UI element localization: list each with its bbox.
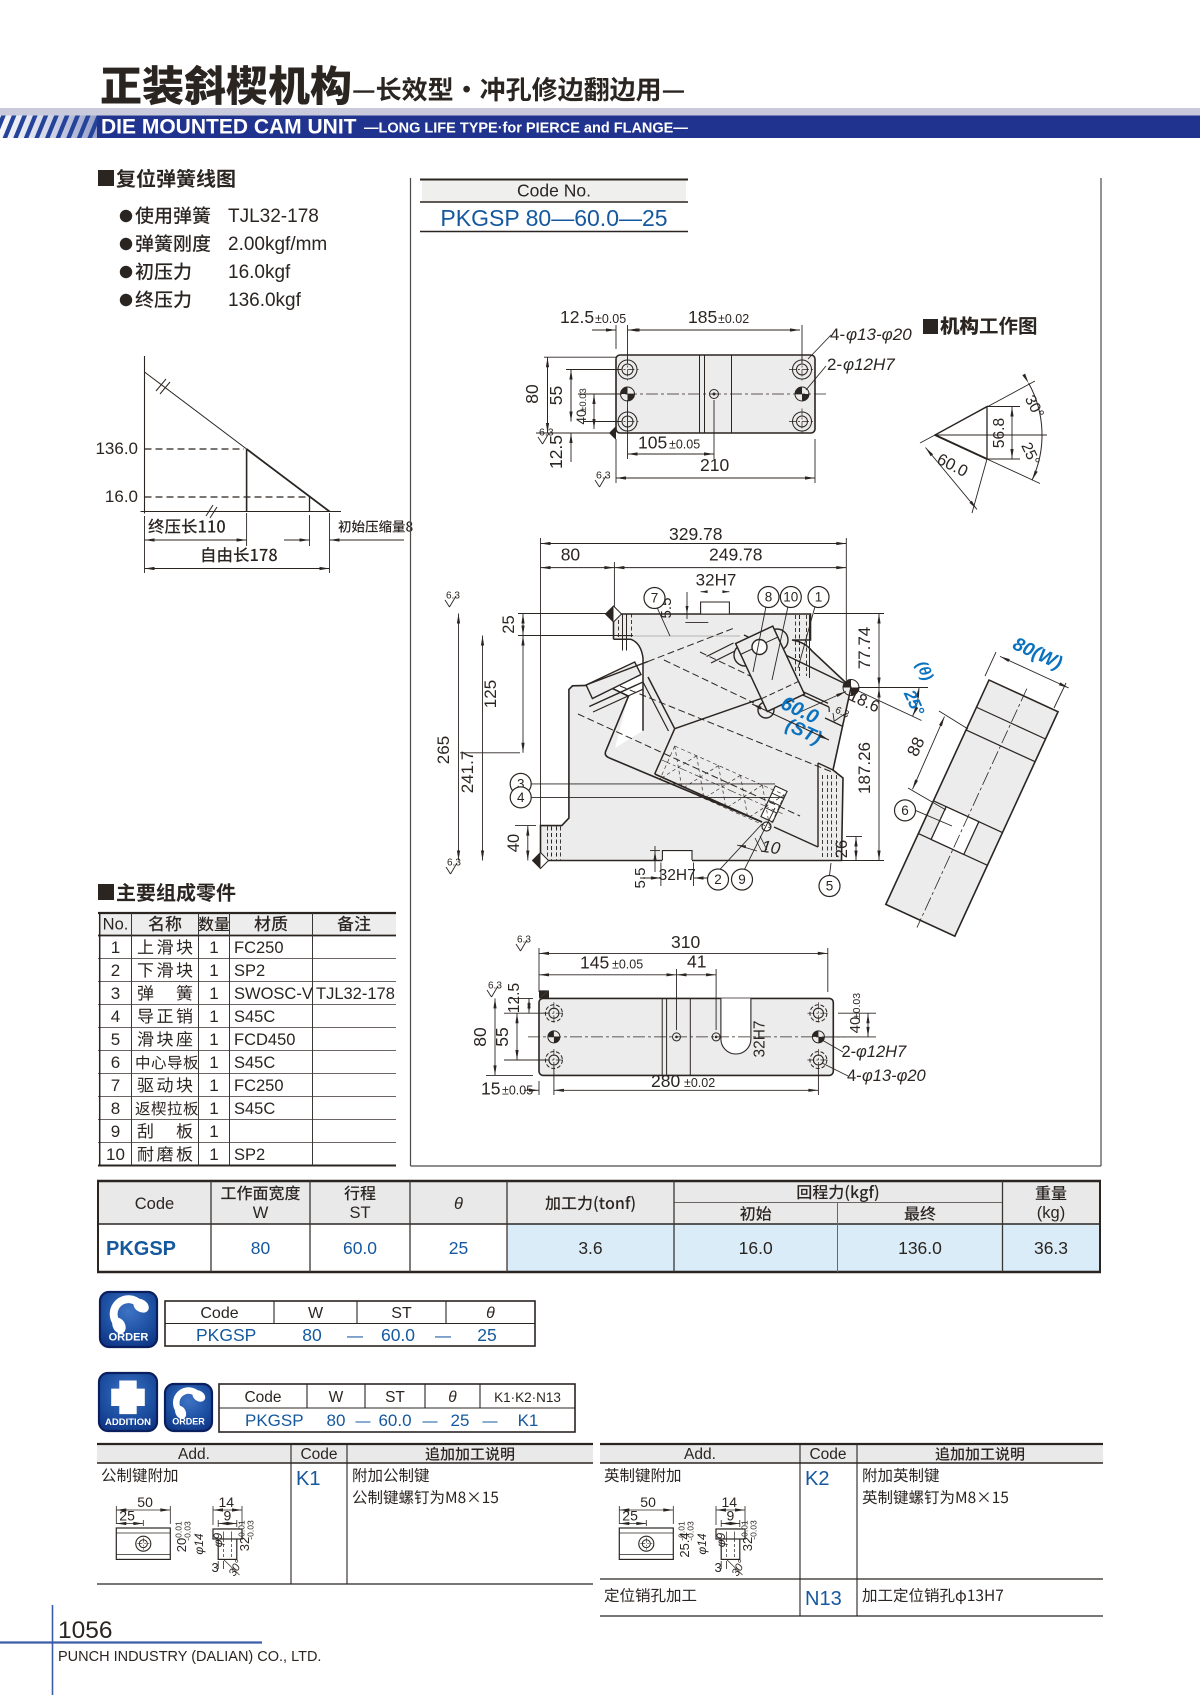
svg-text:80: 80 — [327, 1411, 346, 1430]
svg-text:PKGSP: PKGSP — [245, 1411, 304, 1430]
svg-text:±0.05: ±0.05 — [669, 438, 700, 452]
svg-text:80: 80 — [470, 1027, 490, 1047]
svg-text:6.3: 6.3 — [447, 858, 461, 869]
svg-text:2: 2 — [714, 872, 722, 887]
svg-text:16.0kgf: 16.0kgf — [228, 262, 291, 283]
svg-text:30°: 30° — [227, 1558, 246, 1579]
svg-text:280: 280 — [651, 1071, 680, 1091]
svg-text:3: 3 — [111, 984, 120, 1003]
svg-text:K1: K1 — [518, 1411, 539, 1430]
svg-text:1: 1 — [209, 938, 218, 957]
svg-text:2-: 2- — [842, 1043, 857, 1061]
svg-text:S45C: S45C — [234, 1008, 275, 1026]
svg-text:5: 5 — [111, 1030, 120, 1049]
svg-text:88: 88 — [903, 734, 928, 759]
svg-text:2: 2 — [111, 961, 120, 980]
svg-text:3: 3 — [715, 1560, 722, 1575]
svg-text:SP2: SP2 — [234, 962, 265, 980]
svg-text:6.3: 6.3 — [446, 591, 460, 602]
svg-text:-0.03: -0.03 — [749, 1520, 759, 1540]
svg-text:12.5: 12.5 — [506, 983, 523, 1013]
svg-text:9: 9 — [224, 1508, 232, 1524]
svg-text:1: 1 — [209, 1076, 218, 1095]
svg-text:±0.02: ±0.02 — [684, 1076, 715, 1090]
svg-text:Code: Code — [809, 1446, 846, 1463]
svg-text:φ13-φ20: φ13-φ20 — [862, 1067, 927, 1085]
svg-text:φ9: φ9 — [211, 1532, 225, 1547]
svg-text:S45C: S45C — [234, 1100, 275, 1118]
svg-text:±0.03: ±0.03 — [851, 993, 863, 1019]
svg-text:θ: θ — [486, 1305, 495, 1322]
svg-text:80: 80 — [302, 1325, 322, 1345]
svg-text:K1·K2·N13: K1·K2·N13 — [494, 1390, 561, 1405]
svg-text:1: 1 — [111, 938, 120, 957]
svg-text:25°: 25° — [1017, 440, 1042, 468]
svg-text:60.0: 60.0 — [343, 1238, 377, 1258]
svg-text:Add.: Add. — [684, 1446, 716, 1463]
svg-text:12.5: 12.5 — [546, 435, 566, 469]
svg-text:25: 25 — [449, 1238, 468, 1258]
svg-text:12.5: 12.5 — [560, 307, 594, 327]
svg-text:32H7: 32H7 — [659, 867, 696, 884]
svg-text:6.3: 6.3 — [517, 935, 531, 946]
svg-text:No.: No. — [103, 916, 129, 934]
svg-text:1: 1 — [815, 590, 823, 605]
svg-text:—LONG LIFE TYPE·for PIERCE and: —LONG LIFE TYPE·for PIERCE and FLANGE— — [364, 121, 688, 137]
svg-text:32H7: 32H7 — [696, 571, 737, 590]
svg-text:SP2: SP2 — [234, 1146, 265, 1164]
svg-text:1: 1 — [209, 984, 218, 1003]
svg-text:S45C: S45C — [234, 1054, 275, 1072]
svg-text:8: 8 — [111, 1099, 120, 1118]
svg-text:8: 8 — [765, 590, 773, 605]
svg-text:9: 9 — [738, 872, 746, 887]
svg-text:±0.03: ±0.03 — [578, 388, 589, 412]
svg-text:Code No.: Code No. — [517, 181, 591, 201]
svg-text:25: 25 — [119, 1508, 135, 1524]
svg-text:310: 310 — [671, 932, 700, 952]
svg-text:ST: ST — [385, 1389, 405, 1406]
svg-text:50: 50 — [640, 1494, 656, 1510]
svg-text:26: 26 — [833, 840, 851, 858]
svg-text:±0.05: ±0.05 — [612, 958, 643, 972]
svg-text:FC250: FC250 — [234, 1077, 284, 1095]
svg-text:—: — — [347, 1328, 363, 1345]
svg-text:Add.: Add. — [178, 1446, 210, 1463]
svg-text:60.0: 60.0 — [934, 450, 971, 481]
svg-text:210: 210 — [700, 455, 729, 475]
svg-text:K2: K2 — [805, 1468, 829, 1490]
svg-text:10: 10 — [106, 1145, 125, 1164]
svg-text:36.3: 36.3 — [1034, 1238, 1068, 1258]
svg-text:N13: N13 — [805, 1588, 842, 1610]
svg-text:±0.02: ±0.02 — [718, 312, 749, 326]
svg-text:—: — — [356, 1413, 371, 1430]
svg-text:ADDITION: ADDITION — [105, 1417, 151, 1428]
svg-text:1: 1 — [209, 961, 218, 980]
svg-text:1: 1 — [209, 1145, 218, 1164]
svg-text:10: 10 — [783, 590, 798, 605]
svg-text:φ12H7: φ12H7 — [856, 1043, 907, 1061]
svg-text:187.26: 187.26 — [855, 742, 874, 794]
svg-text:125: 125 — [481, 680, 500, 708]
svg-text:40: 40 — [505, 834, 523, 852]
svg-text:FC250: FC250 — [234, 939, 284, 957]
svg-text:1: 1 — [209, 1030, 218, 1049]
svg-text:6: 6 — [901, 803, 909, 818]
svg-text:4: 4 — [517, 790, 525, 805]
svg-text:3.6: 3.6 — [578, 1238, 602, 1258]
svg-text:41: 41 — [687, 952, 706, 972]
svg-text:6: 6 — [111, 1053, 120, 1072]
svg-text:6.3: 6.3 — [488, 981, 502, 992]
svg-text:60.0: 60.0 — [381, 1325, 415, 1345]
svg-text:9: 9 — [727, 1508, 735, 1524]
svg-text:-0.03: -0.03 — [183, 1521, 193, 1541]
svg-text:—: — — [483, 1413, 498, 1430]
svg-text:—: — — [435, 1328, 451, 1345]
svg-text:136.0kgf: 136.0kgf — [228, 290, 302, 311]
svg-text:7: 7 — [111, 1076, 120, 1095]
svg-text:W: W — [308, 1305, 324, 1322]
svg-text:(θ): (θ) — [912, 659, 936, 684]
svg-text:-0.03: -0.03 — [246, 1520, 256, 1540]
svg-text:80(W): 80(W) — [1009, 634, 1065, 675]
svg-text:15: 15 — [481, 1079, 500, 1099]
svg-text:32H7: 32H7 — [752, 1020, 769, 1057]
svg-text:φ12H7: φ12H7 — [843, 355, 895, 374]
svg-text:50: 50 — [137, 1494, 153, 1510]
svg-text:55: 55 — [492, 1027, 512, 1046]
svg-text:16.0: 16.0 — [105, 487, 138, 506]
svg-text:80: 80 — [251, 1238, 271, 1258]
svg-text:W: W — [329, 1389, 344, 1406]
svg-text:2.00kgf/mm: 2.00kgf/mm — [228, 234, 327, 255]
svg-text:265: 265 — [434, 736, 453, 764]
svg-text:DIE MOUNTED CAM UNIT: DIE MOUNTED CAM UNIT — [101, 116, 357, 139]
svg-text:Code: Code — [300, 1446, 337, 1463]
svg-text:25: 25 — [622, 1508, 638, 1524]
svg-text:Code: Code — [244, 1389, 281, 1406]
svg-text:4-: 4- — [847, 1067, 862, 1085]
svg-text:7: 7 — [651, 591, 659, 606]
svg-text:329.78: 329.78 — [669, 524, 723, 544]
svg-text:145: 145 — [580, 953, 609, 973]
svg-text:5: 5 — [826, 879, 834, 894]
svg-text:249.78: 249.78 — [709, 545, 763, 565]
svg-text:±0.05: ±0.05 — [502, 1084, 533, 1098]
svg-text:(kg): (kg) — [1037, 1204, 1065, 1222]
svg-text:2-: 2- — [827, 355, 842, 374]
svg-text:φ9: φ9 — [714, 1532, 728, 1547]
svg-text:16.0: 16.0 — [739, 1238, 773, 1258]
svg-text:1: 1 — [209, 1099, 218, 1118]
svg-text:FCD450: FCD450 — [234, 1031, 295, 1049]
svg-text:ST: ST — [349, 1204, 370, 1222]
svg-text:80: 80 — [522, 384, 542, 404]
svg-text:SWOSC-V: SWOSC-V — [234, 985, 313, 1003]
svg-text:±0.05: ±0.05 — [595, 312, 626, 326]
svg-text:4-: 4- — [830, 325, 845, 344]
svg-text:80: 80 — [561, 545, 581, 565]
svg-text:136.0: 136.0 — [95, 439, 138, 458]
svg-text:PKGSP: PKGSP — [106, 1238, 176, 1260]
svg-text:25°: 25° — [900, 686, 929, 718]
svg-text:10: 10 — [760, 837, 782, 859]
svg-text:φ14: φ14 — [695, 1533, 709, 1555]
svg-text:9: 9 — [111, 1122, 120, 1141]
svg-text:185: 185 — [688, 307, 717, 327]
svg-text:1: 1 — [209, 1007, 218, 1026]
svg-text:φ14: φ14 — [192, 1533, 206, 1555]
svg-text:105: 105 — [638, 433, 667, 453]
svg-text:PKGSP: PKGSP — [196, 1325, 256, 1345]
svg-text:56.8: 56.8 — [991, 418, 1008, 448]
svg-text:-0.03: -0.03 — [686, 1521, 696, 1541]
svg-text:K1: K1 — [296, 1468, 320, 1490]
svg-text:60.0: 60.0 — [378, 1411, 411, 1430]
svg-text:5.5: 5.5 — [632, 868, 649, 889]
svg-text:241.7: 241.7 — [458, 751, 477, 794]
svg-text:ST: ST — [391, 1305, 412, 1322]
svg-text:1056: 1056 — [58, 1617, 113, 1644]
svg-text:30°: 30° — [730, 1558, 749, 1579]
svg-text:18.6: 18.6 — [846, 687, 883, 717]
svg-text:25: 25 — [500, 615, 518, 633]
svg-text:25: 25 — [451, 1411, 470, 1430]
svg-text:ORDER: ORDER — [109, 1332, 149, 1344]
svg-text:77.74: 77.74 — [855, 627, 874, 670]
svg-text:25: 25 — [477, 1325, 496, 1345]
svg-text:—: — — [423, 1413, 438, 1430]
svg-text:136.0: 136.0 — [898, 1238, 942, 1258]
svg-text:PKGSP 80—60.0—25: PKGSP 80—60.0—25 — [440, 205, 667, 231]
svg-text:3: 3 — [212, 1560, 219, 1575]
svg-text:30°: 30° — [1021, 393, 1047, 422]
svg-text:4: 4 — [111, 1007, 120, 1026]
svg-text:1: 1 — [209, 1053, 218, 1072]
svg-text:ORDER: ORDER — [172, 1417, 205, 1427]
svg-text:55: 55 — [546, 386, 566, 405]
svg-text:6.3: 6.3 — [596, 470, 611, 482]
svg-text:6.3: 6.3 — [539, 427, 554, 439]
svg-text:θ: θ — [454, 1195, 463, 1213]
svg-text:Code: Code — [135, 1195, 174, 1213]
svg-text:TJL32-178: TJL32-178 — [228, 206, 319, 227]
svg-text:1: 1 — [209, 1122, 218, 1141]
svg-text:θ: θ — [448, 1389, 457, 1406]
svg-text:TJL32-178: TJL32-178 — [316, 985, 395, 1003]
svg-text:Code: Code — [200, 1305, 238, 1322]
svg-text:PUNCH INDUSTRY (DALIAN) CO., L: PUNCH INDUSTRY (DALIAN) CO., LTD. — [58, 1649, 321, 1665]
svg-text:φ13-φ20: φ13-φ20 — [846, 325, 912, 344]
svg-text:W: W — [253, 1204, 269, 1222]
